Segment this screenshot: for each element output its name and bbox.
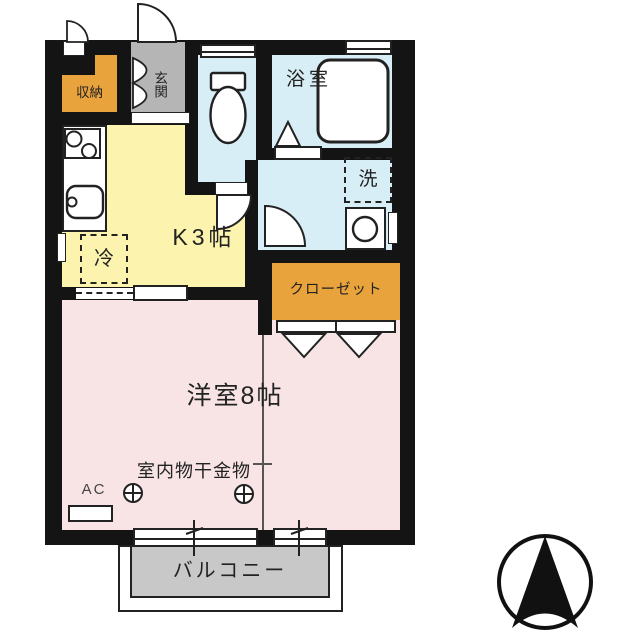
entrance-label: 玄関 (147, 57, 171, 111)
wall-left (45, 40, 62, 545)
window-sash-line (275, 538, 325, 540)
sliding-door-track (76, 288, 133, 299)
toilet-window (200, 44, 256, 58)
toilet-door-threshold (215, 182, 248, 195)
washing-machine (345, 207, 386, 250)
kitchen-label: K3帖 (148, 220, 260, 254)
window-sash-line (135, 538, 256, 540)
compass-north-icon (499, 536, 591, 628)
closet-label: クローゼット (272, 266, 400, 316)
wall-right-lower (400, 250, 415, 545)
window-sash-line (202, 51, 254, 53)
right-slit-window (388, 212, 398, 244)
closet-door-divider (335, 320, 337, 333)
indoor-laundry-label: 室内物干金物 (118, 459, 270, 483)
floorplan: バルコニー (0, 0, 640, 640)
wall-toilet-bottom (185, 182, 215, 195)
room-partition-line (262, 335, 264, 530)
window-sash-line (347, 48, 390, 50)
sliding-door-track-line (76, 292, 133, 294)
wall-closet-left (258, 250, 272, 335)
main-room-label: 洋室8帖 (160, 378, 310, 414)
storage-exterior-door-swing (67, 21, 88, 42)
storage-area-top (95, 55, 117, 75)
sliding-door-panel (133, 285, 188, 301)
storage-exterior-door-opening (63, 41, 85, 56)
ac-unit-box (68, 505, 113, 522)
stove (64, 128, 101, 159)
entrance-step (131, 112, 190, 124)
washer-space-label: 洗 (344, 159, 392, 201)
bathroom-window (345, 40, 392, 55)
wall-bath-left (256, 55, 272, 160)
left-slit-window (57, 233, 66, 262)
storage-label: 収納 (62, 76, 117, 110)
bathroom-label: 浴室 (276, 68, 342, 92)
entrance-door-swing (138, 4, 176, 42)
balcony-label: バルコニー (173, 561, 288, 582)
wall-toilet-left (185, 55, 198, 195)
bath-door-threshold (274, 146, 322, 160)
balcony-area: バルコニー (130, 545, 330, 598)
refrigerator-label: 冷 (80, 236, 128, 282)
ac-label: AC (72, 480, 116, 500)
